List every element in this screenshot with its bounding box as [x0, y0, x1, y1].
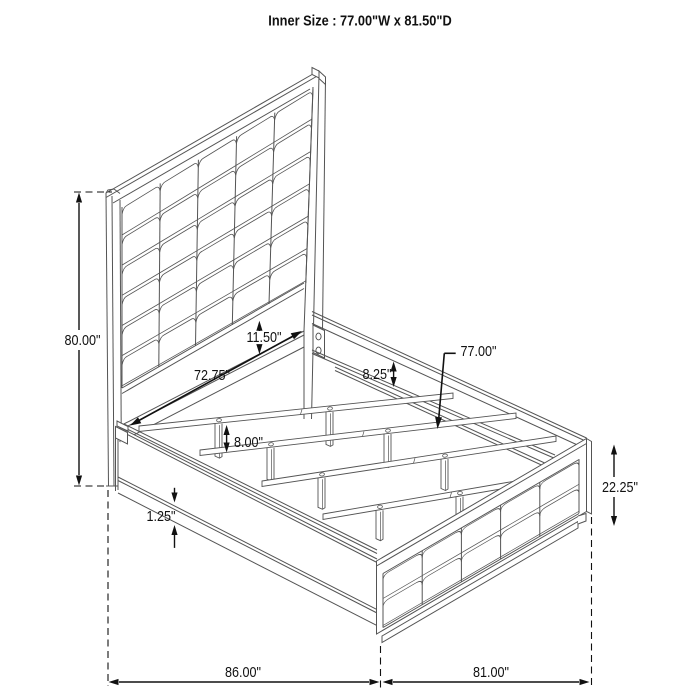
svg-text:77.00": 77.00"	[461, 343, 497, 359]
svg-text:22.25": 22.25"	[602, 479, 638, 495]
svg-text:80.00": 80.00"	[65, 332, 101, 348]
svg-text:8.25": 8.25"	[363, 366, 392, 382]
svg-text:81.00": 81.00"	[473, 664, 509, 680]
svg-text:11.50": 11.50"	[246, 329, 281, 345]
svg-text:86.00": 86.00"	[225, 664, 261, 680]
svg-text:Inner Size : 77.00"W x 81.50"D: Inner Size : 77.00"W x 81.50"D	[268, 11, 451, 28]
svg-text:8.00": 8.00"	[234, 434, 263, 450]
svg-text:1.25": 1.25"	[147, 508, 176, 524]
svg-text:72.75": 72.75"	[194, 367, 230, 383]
